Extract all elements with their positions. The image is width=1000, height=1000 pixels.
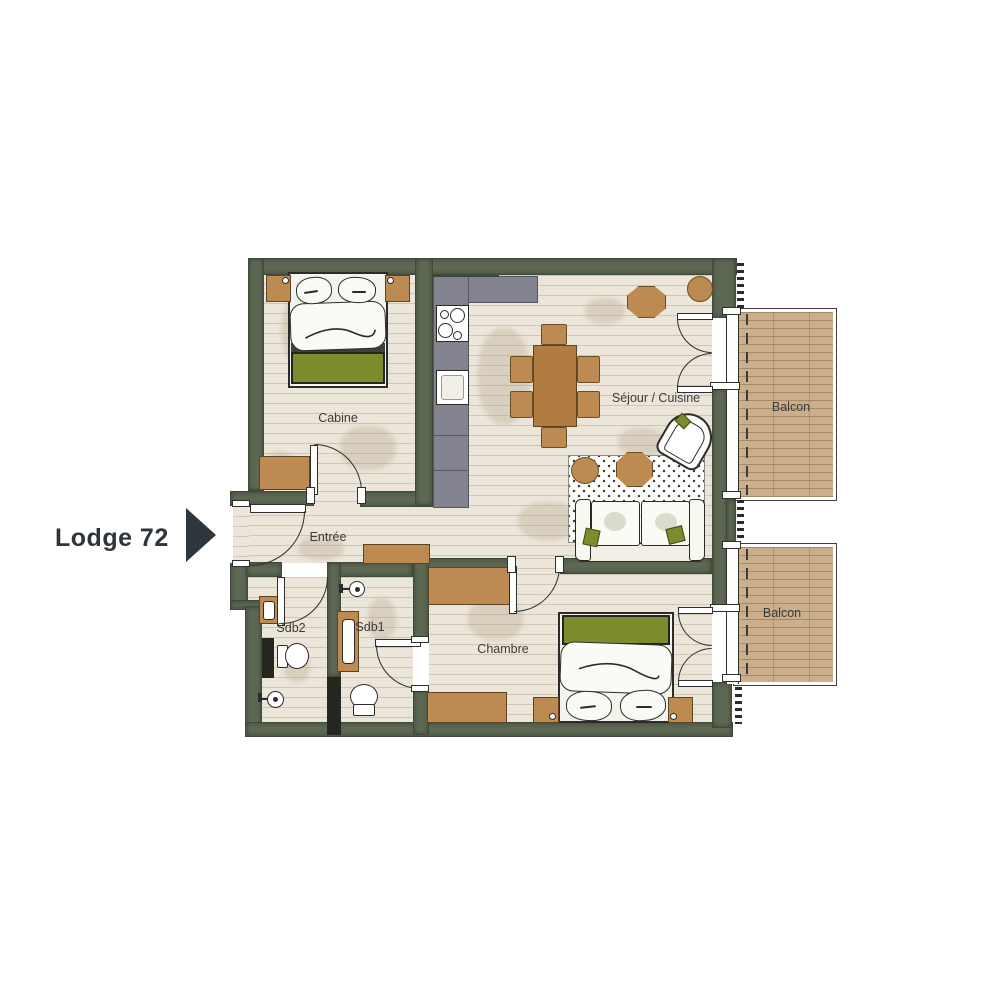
pillow-crease [352,291,366,293]
dining-chair [577,356,600,383]
dining-chair [510,391,533,418]
railing-ticks-bottom [735,687,742,724]
chambre-nightstand-left [533,697,559,723]
cabine-bed-runner [291,352,385,384]
wall-sdb-divider-black [327,677,341,735]
balcony1-window-dash [746,314,748,495]
railing-ticks-middle [737,500,744,542]
wall-right-mid-wide [726,498,736,545]
window-frame-post [722,674,741,682]
sdb2-shower-dot [273,697,278,702]
wall-right-lower [712,682,732,728]
cabine-bed-duvet [289,300,387,351]
room-label-sdb2: Sdb2 [276,621,305,635]
wall-bottom [245,722,733,737]
dining-chair [541,427,567,448]
kitchen-sink-basin [441,375,464,400]
door-jamb [232,560,250,567]
chambre-bed-duvet [559,641,673,695]
floor-entrance-threshold [233,506,249,563]
sdb1-toilet-tank [353,704,375,716]
duvet-crease [290,301,388,352]
door-jamb [306,487,315,504]
floor-cabine-door-gap [314,491,360,506]
window-strip-balcony1 [726,310,739,498]
stove-burner [453,331,462,340]
dining-chair [510,356,533,383]
entree-bench [363,544,430,564]
nightstand-lamp [670,713,677,720]
door-jamb [555,556,564,573]
room-label-balcon2: Balcon [763,606,801,620]
window-frame-post [710,382,740,390]
sofa-armrest-right [689,499,705,561]
door-jamb [411,636,429,643]
sdb2-shower-valve [258,693,262,702]
dining-chair [541,324,567,345]
floor-blot [585,298,625,324]
door-jamb [357,487,366,504]
pouf [571,457,599,484]
window-frame-post [710,604,740,612]
wall-chambre-left-upper [413,558,429,643]
floor-plan-canvas: Cabine Entrée Sdb2 Sdb1 Chambre Séjour /… [0,0,1000,1000]
chambre-wardrobe-top [428,567,510,605]
balcony2-window-dash [746,549,748,680]
chambre-bed-runner [562,615,670,645]
right-arrow-icon [186,508,216,562]
sofa-seat-shading [604,512,626,531]
door-jamb [411,685,429,692]
room-label-chambre: Chambre [477,642,528,656]
stove-burner [438,323,453,338]
door-jamb [507,556,516,573]
sdb1-shower-valve [339,584,343,593]
pillow-crease [636,706,652,708]
kitchen-counter-seam [433,470,469,471]
room-label-balcon1: Balcon [772,400,810,414]
room-label-cabine: Cabine [318,411,358,425]
window-frame-post [722,491,741,499]
pouf [687,276,713,302]
nightstand-lamp [387,277,394,284]
sdb2-sink [263,601,275,620]
room-label-entree: Entrée [310,530,347,544]
room-label-sdb1: Sdb1 [355,620,384,634]
wall-sdb2-partition [262,638,274,678]
sdb1-shower-dot [355,587,360,592]
railing-ticks-top [737,263,744,310]
plan-title: Lodge 72 [55,524,169,553]
sdb1-sink [342,619,355,664]
sdb2-toilet-bowl [285,643,309,669]
wall-left-lower [245,606,262,735]
cabine-cabinet [259,456,310,490]
duvet-crease [560,642,674,696]
wall-cabine-right [415,258,433,506]
nightstand-lamp [549,713,556,720]
room-label-sejour: Séjour / Cuisine [612,391,700,405]
door-jamb [232,500,250,507]
kitchen-counter-seam [433,435,469,436]
stove-burner [440,310,449,319]
dining-table [533,345,577,427]
stove-burner [450,308,465,323]
window-frame-post [722,541,741,549]
chambre-wardrobe-bottom [427,692,507,723]
dining-chair [577,391,600,418]
window-strip-balcony2 [726,545,739,684]
nightstand-lamp [282,277,289,284]
